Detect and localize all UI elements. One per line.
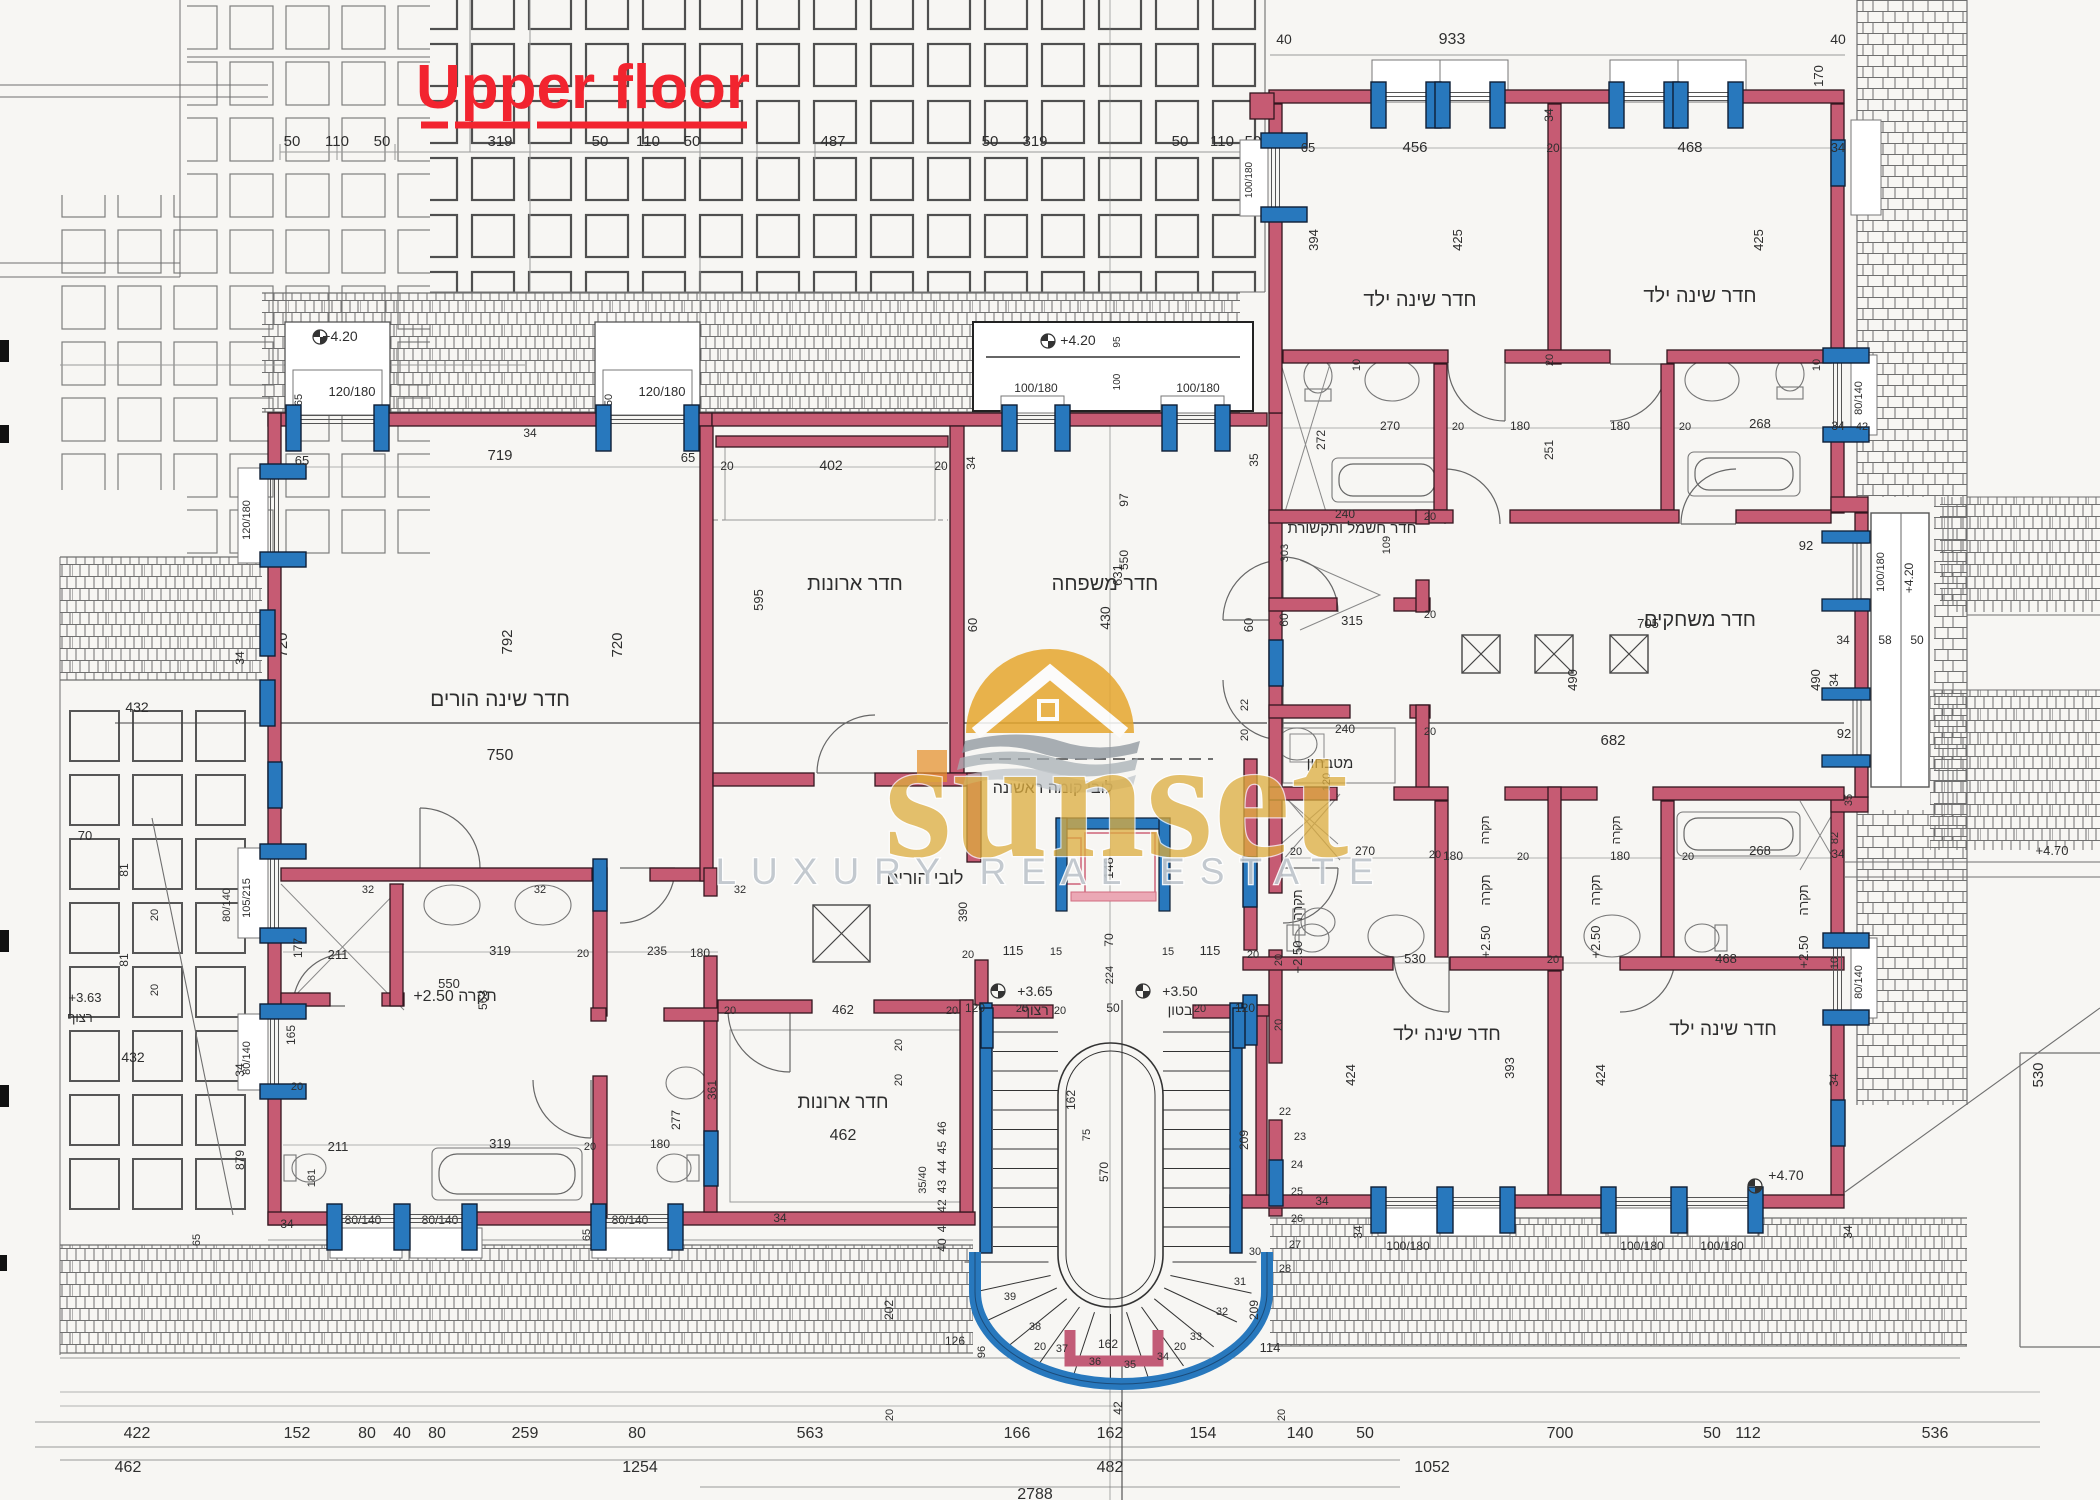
- svg-text:20: 20: [1174, 1341, 1186, 1353]
- svg-text:34: 34: [233, 651, 247, 665]
- svg-text:361: 361: [705, 1080, 719, 1100]
- svg-text:30: 30: [1249, 1246, 1261, 1258]
- svg-text:+3.50: +3.50: [1162, 983, 1198, 999]
- svg-text:100/180: 100/180: [1620, 1239, 1664, 1253]
- svg-text:10: 10: [1829, 957, 1841, 969]
- svg-text:120/180: 120/180: [241, 500, 253, 540]
- svg-text:272: 272: [1314, 430, 1328, 450]
- svg-text:462: 462: [115, 1459, 142, 1476]
- svg-text:34: 34: [1836, 633, 1850, 647]
- svg-text:20: 20: [720, 459, 734, 473]
- svg-text:719: 719: [487, 447, 512, 464]
- svg-text:34: 34: [1542, 108, 1556, 122]
- svg-text:81: 81: [117, 863, 131, 877]
- svg-text:933: 933: [1439, 31, 1466, 48]
- svg-text:44: 44: [935, 1160, 949, 1174]
- svg-text:20: 20: [1682, 851, 1694, 863]
- svg-text:רצוף: רצוף: [67, 1010, 93, 1025]
- svg-text:270: 270: [1380, 419, 1400, 433]
- svg-text:20: 20: [1276, 1409, 1288, 1421]
- svg-text:20: 20: [1547, 954, 1559, 966]
- svg-text:38: 38: [1029, 1321, 1041, 1333]
- svg-text:23: 23: [1294, 1131, 1306, 1143]
- svg-text:152: 152: [284, 1425, 311, 1442]
- svg-text:393: 393: [1502, 1057, 1517, 1079]
- svg-text:530: 530: [2030, 1062, 2047, 1087]
- svg-text:180: 180: [1510, 419, 1530, 433]
- svg-text:80/140: 80/140: [422, 1213, 459, 1227]
- svg-text:462: 462: [832, 1002, 854, 1017]
- svg-text:חדר שינה ילד: חדר שינה ילד: [1643, 285, 1756, 307]
- svg-text:170: 170: [1811, 65, 1826, 87]
- svg-text:424: 424: [1343, 1064, 1358, 1086]
- svg-text:550: 550: [1117, 550, 1131, 570]
- svg-text:25: 25: [1291, 1186, 1303, 1198]
- svg-text:28: 28: [1279, 1263, 1291, 1275]
- svg-text:100/180: 100/180: [1386, 1239, 1430, 1253]
- svg-text:בטון: בטון: [1168, 1002, 1193, 1018]
- svg-text:40: 40: [1276, 31, 1292, 47]
- svg-text:+2.50: +2.50: [1588, 926, 1603, 959]
- svg-text:180: 180: [690, 946, 710, 960]
- svg-text:432: 432: [125, 699, 149, 715]
- svg-text:35/40: 35/40: [917, 1166, 929, 1194]
- svg-text:180: 180: [1610, 849, 1630, 863]
- svg-text:10: 10: [1811, 359, 1823, 371]
- svg-text:468: 468: [1715, 951, 1737, 966]
- svg-text:35: 35: [1247, 453, 1261, 467]
- svg-text:+3.65: +3.65: [1017, 983, 1053, 999]
- svg-text:Upper floor: Upper floor: [416, 53, 750, 122]
- svg-text:50: 50: [1106, 1001, 1120, 1015]
- svg-text:32: 32: [1216, 1306, 1228, 1318]
- svg-text:46: 46: [935, 1121, 949, 1135]
- svg-text:268: 268: [1749, 843, 1771, 858]
- svg-text:487: 487: [820, 133, 845, 150]
- svg-text:80: 80: [358, 1425, 376, 1442]
- svg-text:424: 424: [1593, 1064, 1608, 1086]
- svg-text:חדר חשמל ותקשורת: חדר חשמל ותקשורת: [1287, 520, 1416, 537]
- svg-text:42: 42: [1856, 421, 1868, 433]
- svg-text:תקרה: תקרה: [1796, 884, 1811, 915]
- svg-text:32: 32: [362, 884, 374, 896]
- svg-text:81: 81: [117, 953, 131, 967]
- svg-text:120: 120: [965, 1001, 985, 1015]
- svg-text:209: 209: [1247, 1300, 1261, 1320]
- svg-text:20: 20: [1517, 851, 1529, 863]
- svg-text:180: 180: [1443, 849, 1463, 863]
- svg-text:58: 58: [1878, 633, 1892, 647]
- svg-text:חדר משחקים: חדר משחקים: [1644, 609, 1756, 631]
- svg-text:65: 65: [681, 450, 695, 465]
- svg-text:319: 319: [487, 133, 512, 150]
- svg-text:רצוף: רצוף: [1021, 1002, 1048, 1018]
- svg-text:LUXURY REAL ESTATE: LUXURY REAL ESTATE: [715, 851, 1388, 892]
- svg-text:879: 879: [233, 1150, 247, 1170]
- svg-text:92: 92: [1837, 726, 1851, 741]
- svg-text:40: 40: [935, 1238, 949, 1252]
- svg-text:תקרה: תקרה: [1478, 816, 1492, 845]
- svg-text:65: 65: [293, 394, 305, 406]
- svg-text:82: 82: [1829, 832, 1841, 844]
- svg-text:20: 20: [1429, 849, 1441, 861]
- svg-text:60: 60: [965, 618, 980, 632]
- svg-text:700: 700: [1547, 1425, 1574, 1442]
- svg-text:20: 20: [1034, 1341, 1046, 1353]
- svg-text:34: 34: [1831, 419, 1845, 433]
- svg-text:34: 34: [233, 1063, 247, 1077]
- svg-text:211: 211: [328, 947, 349, 962]
- svg-text:34: 34: [1315, 1194, 1329, 1208]
- svg-text:20: 20: [1247, 949, 1259, 961]
- svg-text:80/140: 80/140: [1853, 965, 1865, 999]
- svg-text:20: 20: [1544, 354, 1556, 366]
- svg-text:20: 20: [893, 1039, 905, 1051]
- svg-text:110: 110: [636, 133, 660, 150]
- svg-text:20: 20: [1273, 1019, 1285, 1031]
- svg-text:20: 20: [1054, 1005, 1066, 1017]
- svg-text:+4.20: +4.20: [1060, 332, 1096, 348]
- svg-text:209: 209: [1237, 1130, 1251, 1150]
- svg-text:50: 50: [982, 133, 999, 150]
- svg-text:תקרה: תקרה: [1478, 874, 1493, 905]
- svg-text:15: 15: [1162, 946, 1174, 958]
- svg-text:20: 20: [934, 459, 948, 473]
- svg-text:65: 65: [191, 1234, 203, 1246]
- svg-text:חדר שינה ילד: חדר שינה ילד: [1393, 1024, 1501, 1045]
- svg-text:95: 95: [1112, 336, 1123, 348]
- svg-text:60: 60: [1277, 613, 1291, 627]
- svg-text:120/180: 120/180: [639, 384, 686, 399]
- svg-text:+4.70: +4.70: [1768, 1167, 1804, 1183]
- svg-text:100/180: 100/180: [1700, 1239, 1744, 1253]
- svg-text:162: 162: [1064, 1090, 1078, 1110]
- svg-text:35: 35: [1843, 794, 1855, 806]
- svg-text:211: 211: [328, 1139, 349, 1154]
- svg-text:530: 530: [1404, 951, 1426, 966]
- svg-text:33: 33: [1190, 1331, 1202, 1343]
- svg-text:20: 20: [946, 1005, 958, 1017]
- svg-text:חדר שינה הורים: חדר שינה הורים: [430, 688, 570, 711]
- svg-text:92: 92: [1799, 538, 1813, 553]
- svg-text:34: 34: [1827, 673, 1841, 687]
- svg-text:20: 20: [893, 1074, 905, 1086]
- svg-text:36: 36: [1089, 1356, 1101, 1368]
- svg-text:792: 792: [499, 629, 516, 654]
- svg-text:240: 240: [1335, 507, 1355, 521]
- svg-text:394: 394: [1306, 229, 1321, 251]
- svg-text:177: 177: [291, 938, 305, 958]
- svg-text:חדר ארונות: חדר ארונות: [807, 573, 903, 595]
- svg-text:20: 20: [724, 1005, 736, 1017]
- svg-text:65: 65: [295, 453, 309, 468]
- svg-text:224: 224: [1104, 966, 1116, 984]
- svg-text:80/140: 80/140: [1853, 381, 1865, 415]
- svg-text:80/140: 80/140: [612, 1213, 649, 1227]
- svg-text:550: 550: [438, 976, 460, 991]
- svg-text:50: 50: [1703, 1425, 1721, 1442]
- svg-text:110: 110: [1210, 133, 1234, 150]
- svg-text:165: 165: [284, 1025, 298, 1045]
- svg-text:50: 50: [374, 133, 391, 150]
- svg-text:181: 181: [306, 1169, 318, 1187]
- svg-text:חדר משפחה: חדר משפחה: [1052, 573, 1159, 595]
- svg-text:34: 34: [1351, 1225, 1365, 1239]
- svg-text:39: 39: [1004, 1291, 1016, 1303]
- svg-text:319: 319: [1022, 133, 1047, 150]
- svg-text:34: 34: [1827, 1073, 1841, 1087]
- svg-text:35: 35: [1124, 1359, 1136, 1371]
- svg-text:27: 27: [1289, 1239, 1301, 1251]
- svg-text:425: 425: [1450, 229, 1465, 251]
- svg-text:402: 402: [819, 457, 843, 473]
- svg-text:32: 32: [534, 884, 546, 896]
- svg-text:תקרה: תקרה: [1609, 816, 1623, 845]
- svg-text:490: 490: [1565, 669, 1580, 691]
- svg-text:50: 50: [284, 133, 301, 150]
- svg-text:+4.70: +4.70: [2036, 843, 2069, 858]
- svg-text:536: 536: [1922, 1425, 1949, 1442]
- svg-text:80: 80: [628, 1425, 646, 1442]
- svg-text:303: 303: [1279, 544, 1291, 562]
- svg-text:115: 115: [1200, 943, 1221, 958]
- svg-text:+4.20: +4.20: [322, 328, 358, 344]
- svg-text:432: 432: [121, 1049, 145, 1065]
- svg-text:166: 166: [1004, 1425, 1031, 1442]
- svg-text:43: 43: [935, 1180, 949, 1194]
- svg-text:96: 96: [976, 1346, 988, 1358]
- svg-text:+4.20: +4.20: [1902, 562, 1916, 593]
- svg-text:162: 162: [1098, 1337, 1118, 1351]
- svg-text:80: 80: [428, 1425, 446, 1442]
- svg-text:26: 26: [1291, 1213, 1303, 1225]
- svg-text:תקרה: תקרה: [1588, 874, 1603, 905]
- svg-text:468: 468: [1677, 139, 1702, 156]
- svg-text:140: 140: [1287, 1425, 1314, 1442]
- svg-text:50: 50: [1172, 133, 1189, 150]
- svg-text:חדר שינה ילד: חדר שינה ילד: [1363, 289, 1476, 311]
- svg-text:268: 268: [1749, 416, 1771, 431]
- svg-text:120: 120: [1235, 1001, 1255, 1015]
- svg-text:37: 37: [1056, 1343, 1068, 1355]
- svg-text:97: 97: [1117, 493, 1131, 507]
- svg-text:20: 20: [577, 948, 589, 960]
- svg-text:456: 456: [1402, 139, 1427, 156]
- svg-text:20: 20: [962, 949, 974, 961]
- svg-text:10: 10: [1351, 359, 1363, 371]
- svg-text:50: 50: [1910, 633, 1924, 647]
- svg-text:422: 422: [124, 1425, 151, 1442]
- svg-text:20: 20: [584, 1141, 596, 1153]
- svg-text:20: 20: [149, 909, 161, 921]
- svg-text:24: 24: [1291, 1159, 1303, 1171]
- svg-text:251: 251: [1542, 440, 1556, 460]
- svg-text:45: 45: [935, 1141, 949, 1155]
- svg-text:100/180: 100/180: [1176, 381, 1220, 395]
- svg-text:390: 390: [956, 902, 970, 922]
- svg-text:70: 70: [78, 828, 92, 843]
- svg-text:20: 20: [1452, 421, 1464, 433]
- svg-text:34: 34: [280, 1217, 294, 1231]
- svg-text:75: 75: [1081, 1129, 1093, 1141]
- svg-text:319: 319: [489, 943, 511, 958]
- svg-text:65: 65: [1301, 140, 1315, 155]
- svg-text:277: 277: [669, 1110, 683, 1130]
- svg-text:34: 34: [1831, 847, 1845, 861]
- svg-text:34: 34: [1831, 140, 1845, 155]
- svg-text:22: 22: [1279, 1106, 1291, 1118]
- svg-text:20: 20: [149, 984, 161, 996]
- svg-text:20: 20: [1546, 141, 1560, 155]
- svg-text:235: 235: [647, 944, 667, 958]
- svg-text:42: 42: [1111, 1401, 1125, 1415]
- svg-text:110: 110: [325, 133, 349, 150]
- svg-text:180: 180: [650, 1137, 670, 1151]
- svg-text:40: 40: [393, 1425, 411, 1442]
- svg-text:180: 180: [1610, 419, 1630, 433]
- svg-text:120/180: 120/180: [329, 384, 376, 399]
- svg-text:חדר ארונות: חדר ארונות: [798, 1092, 889, 1113]
- svg-text:20: 20: [1194, 1003, 1206, 1015]
- svg-text:595: 595: [751, 589, 766, 611]
- svg-text:80/140: 80/140: [221, 888, 233, 922]
- svg-text:34: 34: [523, 426, 537, 440]
- svg-text:20: 20: [884, 1409, 896, 1421]
- svg-text:1052: 1052: [1414, 1459, 1450, 1476]
- svg-text:563: 563: [797, 1425, 824, 1442]
- svg-text:20: 20: [1679, 421, 1691, 433]
- svg-text:70: 70: [1102, 933, 1116, 947]
- svg-text:112: 112: [1735, 1425, 1761, 1442]
- svg-text:202: 202: [882, 1300, 896, 1320]
- svg-text:750: 750: [487, 747, 514, 764]
- svg-text:425: 425: [1751, 229, 1766, 251]
- svg-text:114: 114: [1260, 1340, 1281, 1355]
- svg-text:1254: 1254: [622, 1459, 658, 1476]
- svg-text:563: 563: [476, 990, 490, 1010]
- svg-text:50: 50: [1356, 1425, 1374, 1442]
- svg-text:50: 50: [684, 133, 701, 150]
- svg-text:682: 682: [1600, 732, 1625, 749]
- svg-text:34: 34: [964, 456, 978, 470]
- svg-text:430: 430: [1097, 606, 1113, 630]
- svg-text:315: 315: [1341, 613, 1363, 628]
- svg-text:50: 50: [603, 394, 615, 406]
- svg-text:105/215: 105/215: [241, 878, 253, 918]
- svg-text:259: 259: [512, 1425, 539, 1442]
- svg-text:+2.50: +2.50: [1478, 926, 1493, 959]
- svg-text:34: 34: [1157, 1351, 1169, 1363]
- svg-text:+2.50: +2.50: [1796, 936, 1811, 969]
- svg-text:109: 109: [1381, 536, 1393, 554]
- svg-text:34: 34: [773, 1211, 787, 1225]
- svg-text:2788: 2788: [1017, 1486, 1053, 1500]
- svg-text:תקרה: תקרה: [1290, 889, 1305, 920]
- svg-text:490: 490: [1808, 669, 1823, 691]
- svg-text:40: 40: [1830, 31, 1846, 47]
- svg-text:20: 20: [1273, 954, 1285, 966]
- svg-text:570: 570: [1097, 1162, 1111, 1182]
- svg-text:34: 34: [1841, 1225, 1855, 1239]
- svg-text:154: 154: [1190, 1425, 1217, 1442]
- svg-text:100: 100: [1112, 373, 1123, 390]
- svg-text:100/180: 100/180: [1014, 381, 1058, 395]
- svg-text:100/180: 100/180: [1875, 552, 1887, 592]
- svg-text:20: 20: [291, 1081, 303, 1093]
- svg-text:חדר שינה ילד: חדר שינה ילד: [1669, 1019, 1777, 1040]
- svg-text:31: 31: [1234, 1276, 1246, 1288]
- svg-text:15: 15: [1050, 946, 1062, 958]
- svg-text:100/180: 100/180: [1244, 161, 1255, 198]
- svg-text:65: 65: [581, 1229, 593, 1241]
- svg-text:80/140: 80/140: [345, 1213, 382, 1227]
- svg-text:20: 20: [1424, 511, 1436, 523]
- svg-text:+3.63: +3.63: [69, 990, 102, 1005]
- svg-text:462: 462: [830, 1127, 857, 1144]
- svg-text:50: 50: [592, 133, 609, 150]
- svg-text:+2.50: +2.50: [1290, 941, 1305, 974]
- svg-text:720: 720: [609, 632, 626, 657]
- svg-text:20: 20: [1424, 726, 1436, 738]
- svg-text:319: 319: [489, 1136, 511, 1151]
- svg-text:115: 115: [1003, 943, 1024, 958]
- svg-text:20: 20: [1424, 609, 1436, 621]
- svg-text:126: 126: [945, 1334, 965, 1348]
- svg-text:42: 42: [935, 1199, 949, 1213]
